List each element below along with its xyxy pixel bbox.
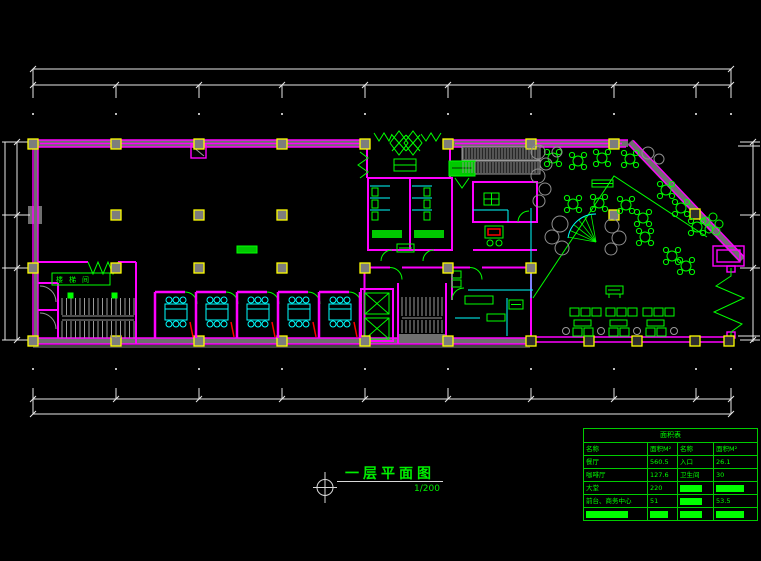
stairwell-label: 楼梯间 bbox=[56, 275, 95, 284]
planter bbox=[671, 328, 678, 335]
redacted-cell bbox=[648, 508, 678, 521]
area-table-title-row: 面积表 bbox=[584, 429, 758, 443]
column-marker bbox=[360, 263, 370, 273]
booth-table bbox=[647, 320, 664, 326]
door-arc bbox=[390, 268, 402, 280]
column-marker bbox=[526, 139, 536, 149]
booth-chair bbox=[581, 308, 590, 316]
room-chair bbox=[180, 321, 186, 327]
booth-chair bbox=[665, 308, 674, 316]
column-marker bbox=[194, 263, 204, 273]
area-table-row: 咖啡厅127.6卫生间30 bbox=[584, 469, 758, 482]
area-table-row: 餐厅560.5入口26.1 bbox=[584, 456, 758, 469]
booth-chair bbox=[606, 308, 615, 316]
column-marker bbox=[111, 210, 121, 220]
chair bbox=[556, 149, 561, 154]
chair bbox=[569, 152, 574, 157]
room-chair bbox=[248, 297, 254, 303]
chair bbox=[621, 150, 626, 155]
chair bbox=[576, 195, 581, 200]
room-chair bbox=[255, 297, 261, 303]
tree bbox=[539, 183, 551, 195]
column-marker bbox=[690, 336, 700, 346]
chair bbox=[689, 269, 694, 274]
room-chair bbox=[207, 321, 213, 327]
column-marker bbox=[360, 336, 370, 346]
room-chair bbox=[180, 297, 186, 303]
area-table-title: 面积表 bbox=[584, 429, 758, 443]
area-table-row: 前台、商务中心5153.5 bbox=[584, 495, 758, 508]
dining-table bbox=[681, 261, 691, 271]
chair bbox=[636, 240, 641, 245]
area-table-cell: 127.6 bbox=[648, 469, 678, 482]
dining-table bbox=[568, 199, 578, 209]
room-chair bbox=[296, 321, 302, 327]
chair bbox=[556, 161, 561, 166]
tree bbox=[533, 195, 545, 207]
area-table-header-cell: 名称 bbox=[584, 443, 648, 456]
planter bbox=[634, 328, 641, 335]
chair bbox=[688, 230, 693, 235]
column-marker bbox=[690, 209, 700, 219]
chair bbox=[657, 181, 662, 186]
booth-chair bbox=[592, 308, 601, 316]
chair bbox=[629, 208, 634, 213]
tree bbox=[654, 154, 664, 164]
column-marker bbox=[632, 336, 642, 346]
chair bbox=[605, 161, 610, 166]
area-table-cell: 30 bbox=[714, 469, 758, 482]
dining-table bbox=[640, 232, 650, 242]
plan-title: 一层平面图 bbox=[345, 463, 435, 483]
chair bbox=[657, 193, 662, 198]
column-marker bbox=[28, 139, 38, 149]
dining-table bbox=[573, 156, 583, 166]
booth-table bbox=[610, 320, 627, 326]
area-table-cell: 220 bbox=[648, 482, 678, 495]
chair bbox=[669, 193, 674, 198]
area-table: 面积表 名称面积M²名称面积M² 餐厅560.5入口26.1咖啡厅127.6卫生… bbox=[583, 428, 758, 521]
column-marker bbox=[724, 336, 734, 346]
cad-canvas: 楼梯间 一层平面图 1/200 面积表 名称面积M²名称面积M² 餐厅560.5… bbox=[0, 0, 761, 561]
room-chair bbox=[173, 297, 179, 303]
column-marker bbox=[443, 139, 453, 149]
column-marker bbox=[111, 263, 121, 273]
tree bbox=[605, 243, 617, 255]
room-chair bbox=[166, 297, 172, 303]
chair bbox=[621, 162, 626, 167]
room-chair bbox=[344, 321, 350, 327]
toilet-fixture bbox=[424, 200, 430, 208]
chair bbox=[605, 149, 610, 154]
area-table-row bbox=[584, 508, 758, 521]
booth-chair bbox=[643, 308, 652, 316]
booth-chair bbox=[657, 328, 666, 336]
elevator-shaft bbox=[361, 289, 393, 341]
plant bbox=[709, 213, 717, 221]
area-table-cell: 入口 bbox=[678, 456, 714, 469]
sink-counter bbox=[414, 230, 444, 238]
room-chair bbox=[330, 321, 336, 327]
redacted-cell bbox=[678, 495, 714, 508]
column-marker bbox=[526, 263, 536, 273]
tree bbox=[540, 158, 552, 170]
toilet-fixture bbox=[372, 188, 378, 196]
column-marker bbox=[443, 263, 453, 273]
booth-chair bbox=[573, 328, 582, 336]
room-chair bbox=[255, 321, 261, 327]
chair bbox=[672, 199, 677, 204]
area-table-cell: 餐厅 bbox=[584, 456, 648, 469]
service-room bbox=[473, 182, 537, 222]
room-table bbox=[206, 304, 228, 320]
tree bbox=[552, 216, 568, 232]
column-marker bbox=[526, 336, 536, 346]
room-chair bbox=[166, 321, 172, 327]
toilet-fixture bbox=[372, 200, 378, 208]
area-table-cell: 卫生间 bbox=[678, 469, 714, 482]
room-chair bbox=[303, 297, 309, 303]
booth-table bbox=[574, 320, 591, 326]
lobby-mat bbox=[237, 246, 257, 253]
gray-details bbox=[40, 147, 204, 329]
chair bbox=[636, 228, 641, 233]
room-chair bbox=[289, 297, 295, 303]
planter bbox=[598, 328, 605, 335]
toilet-fixture bbox=[424, 188, 430, 196]
dining-table bbox=[597, 153, 607, 163]
area-table-cell: 560.5 bbox=[648, 456, 678, 469]
dining-table bbox=[676, 203, 686, 213]
dining-table bbox=[621, 200, 631, 210]
area-table-cell: 26.1 bbox=[714, 456, 758, 469]
dining-table bbox=[625, 154, 635, 164]
booth-chair bbox=[609, 328, 618, 336]
column-marker bbox=[584, 336, 594, 346]
chair bbox=[581, 164, 586, 169]
room-chair bbox=[296, 297, 302, 303]
chair bbox=[576, 207, 581, 212]
column-marker bbox=[443, 336, 453, 346]
room-chair bbox=[344, 297, 350, 303]
room-chair bbox=[337, 297, 343, 303]
chair bbox=[675, 247, 680, 252]
room-chair bbox=[262, 321, 268, 327]
room-table bbox=[329, 304, 351, 320]
area-table-header-cell: 名称 bbox=[678, 443, 714, 456]
room-chair bbox=[289, 321, 295, 327]
column-marker bbox=[277, 263, 287, 273]
room-chair bbox=[330, 297, 336, 303]
room-table bbox=[165, 304, 187, 320]
toilet-fixture bbox=[372, 212, 378, 220]
booth-chair bbox=[584, 328, 593, 336]
chair bbox=[646, 209, 651, 214]
dining-table bbox=[638, 213, 648, 223]
chair bbox=[663, 247, 668, 252]
sink-counter bbox=[372, 230, 402, 238]
chair bbox=[581, 152, 586, 157]
booth-chair bbox=[628, 308, 637, 316]
column-marker bbox=[609, 139, 619, 149]
chair bbox=[663, 259, 668, 264]
chair bbox=[629, 196, 634, 201]
chair bbox=[648, 240, 653, 245]
chair bbox=[689, 257, 694, 262]
zigzag-screen bbox=[714, 268, 744, 337]
column-marker bbox=[277, 210, 287, 220]
chair bbox=[544, 161, 549, 166]
chair bbox=[633, 162, 638, 167]
chair bbox=[634, 221, 639, 226]
column-marker bbox=[360, 139, 370, 149]
area-table-header-row: 名称面积M²名称面积M² bbox=[584, 443, 758, 456]
room-chair bbox=[262, 297, 268, 303]
chair bbox=[593, 149, 598, 154]
chair bbox=[564, 195, 569, 200]
room-chair bbox=[221, 297, 227, 303]
area-table-header-cell: 面积M² bbox=[648, 443, 678, 456]
redacted-cell bbox=[714, 482, 758, 495]
dining-table bbox=[667, 251, 677, 261]
room-chair bbox=[248, 321, 254, 327]
room-chair bbox=[221, 321, 227, 327]
area-table-header-cell: 面积M² bbox=[714, 443, 758, 456]
booth-chair bbox=[646, 328, 655, 336]
chair bbox=[677, 269, 682, 274]
column-marker bbox=[194, 139, 204, 149]
column-marker bbox=[111, 139, 121, 149]
chair bbox=[684, 211, 689, 216]
dining-table bbox=[661, 185, 671, 195]
room-table bbox=[288, 304, 310, 320]
chair bbox=[590, 194, 595, 199]
room-table bbox=[247, 304, 269, 320]
area-table-cell: 大堂 bbox=[584, 482, 648, 495]
room-chair bbox=[207, 297, 213, 303]
redacted-cell bbox=[714, 508, 758, 521]
room-chair bbox=[337, 321, 343, 327]
area-table-cell: 咖啡厅 bbox=[584, 469, 648, 482]
stair-landing bbox=[399, 334, 445, 343]
room-chair bbox=[214, 297, 220, 303]
tree bbox=[545, 230, 559, 244]
area-table-cell: 51 bbox=[648, 495, 678, 508]
room-chair bbox=[173, 321, 179, 327]
chair bbox=[602, 194, 607, 199]
column-marker bbox=[28, 336, 38, 346]
area-table-row: 大堂220 bbox=[584, 482, 758, 495]
generated-geometry bbox=[2, 66, 760, 417]
left-entry-door bbox=[28, 206, 42, 224]
redacted-cell bbox=[678, 482, 714, 495]
column-marker bbox=[194, 210, 204, 220]
chair bbox=[634, 209, 639, 214]
room-chair bbox=[303, 321, 309, 327]
chair bbox=[602, 206, 607, 211]
booth-chair bbox=[654, 308, 663, 316]
area-table-cell: 前台、商务中心 bbox=[584, 495, 648, 508]
booth-chair bbox=[617, 308, 626, 316]
chair bbox=[564, 207, 569, 212]
column-marker bbox=[277, 139, 287, 149]
chair bbox=[646, 221, 651, 226]
booth-chair bbox=[570, 308, 579, 316]
area-table-cell: 53.5 bbox=[714, 495, 758, 508]
plan-scale: 1/200 bbox=[414, 484, 440, 494]
chair bbox=[569, 164, 574, 169]
chair bbox=[648, 228, 653, 233]
chair bbox=[617, 196, 622, 201]
planter bbox=[563, 328, 570, 335]
tree bbox=[555, 241, 569, 255]
column-marker bbox=[28, 263, 38, 273]
room-chair bbox=[214, 321, 220, 327]
booth-chair bbox=[620, 328, 629, 336]
toilet-fixture bbox=[424, 212, 430, 220]
chair bbox=[593, 161, 598, 166]
redacted-cell bbox=[584, 508, 648, 521]
entrance-revolving-doors bbox=[374, 131, 441, 171]
redacted-cell bbox=[678, 508, 714, 521]
tree bbox=[612, 231, 626, 245]
